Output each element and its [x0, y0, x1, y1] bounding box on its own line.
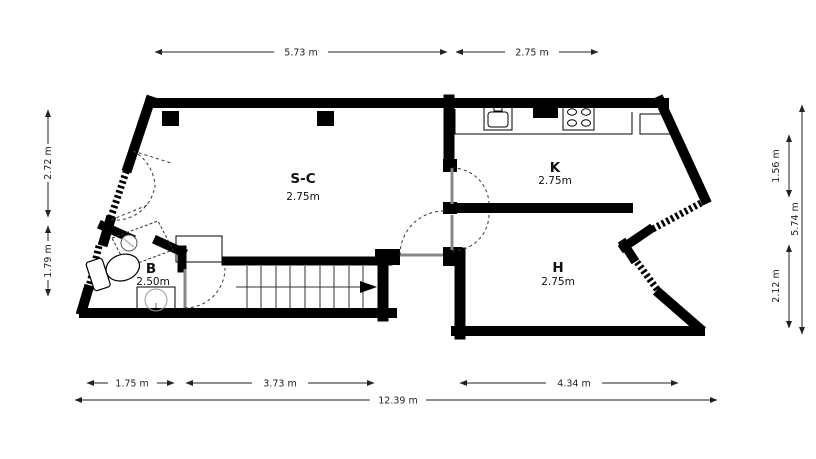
dimension-bottom-total: 12.39 m — [75, 396, 717, 407]
wall-block — [533, 103, 558, 118]
door-kitchen — [452, 168, 489, 205]
dimension-label: 1.79 m — [43, 244, 54, 277]
dimension-label: 5.73 m — [284, 48, 317, 59]
door-corridor — [400, 211, 444, 255]
dimension-label: 2.72 m — [43, 146, 54, 179]
dimension-label: 5.74 m — [790, 202, 801, 235]
dimension-bottom-bath: 1.75 m — [87, 379, 174, 390]
room-name: B — [146, 261, 156, 277]
burner — [582, 120, 591, 126]
dimension-left-upper: 2.72 m — [43, 110, 54, 217]
stairs-direction-arrow — [360, 281, 377, 293]
room-size: 2.75m — [541, 276, 575, 288]
dimension-label: 12.39 m — [378, 396, 417, 407]
room-size: 2.75m — [538, 175, 572, 187]
door-leaf-dashed — [133, 151, 171, 163]
toilet-icon — [85, 247, 143, 291]
dimension-right-lower: 2.12 m — [771, 245, 789, 328]
door-swing-arc — [452, 168, 489, 205]
room-label-b: B 2.50m — [136, 261, 170, 288]
dimension-right-total: 5.74 m — [790, 105, 802, 334]
dimension-bottom-room: 4.34 m — [460, 379, 678, 390]
stove-outline — [563, 105, 594, 130]
door-hall — [452, 214, 489, 251]
dimension-top-left: 5.73 m — [155, 48, 447, 59]
dimension-label: 4.34 m — [557, 379, 590, 390]
sink-basin — [488, 112, 508, 127]
wall-segment — [128, 101, 150, 167]
window-segment — [649, 203, 701, 231]
room-label-sc: S-C 2.75m — [286, 171, 320, 203]
floor-plan-page: 5.73 m 2.75 m 2.72 m 1.79 m 1.56 m 2.12 … — [0, 0, 816, 459]
window-segment — [109, 166, 128, 223]
wall-block — [375, 249, 400, 265]
dimension-top-right: 2.75 m — [456, 48, 598, 59]
dimension-label: 1.75 m — [115, 379, 148, 390]
dimension-label: 1.56 m — [771, 149, 782, 182]
dimension-label: 3.73 m — [263, 379, 296, 390]
column — [317, 111, 334, 126]
door-swing-arc — [185, 268, 225, 308]
stove-icon — [563, 105, 594, 130]
column — [162, 111, 179, 126]
room-name: K — [550, 160, 561, 176]
windows — [88, 166, 701, 296]
door-swing-arc — [452, 214, 489, 251]
floor-plan-canvas: 5.73 m 2.75 m 2.72 m 1.79 m 1.56 m 2.12 … — [0, 0, 816, 459]
structural-columns — [162, 111, 334, 126]
room-label-h: H 2.75m — [541, 260, 575, 288]
room-label-k: K 2.75m — [538, 160, 572, 187]
dimension-label: 2.75 m — [515, 48, 548, 59]
wall-segment — [82, 290, 88, 310]
room-name: H — [552, 260, 563, 276]
dimension-left-lower: 1.79 m — [43, 226, 54, 296]
burner — [568, 120, 577, 126]
wall-segment — [660, 294, 699, 328]
dimension-bottom-stairs: 3.73 m — [186, 379, 374, 390]
burner — [568, 109, 577, 115]
room-name: S-C — [290, 171, 315, 187]
dimension-label: 2.12 m — [771, 269, 782, 302]
room-size: 2.50m — [136, 276, 170, 288]
room-size: 2.75m — [286, 191, 320, 203]
door-bathroom — [185, 268, 225, 308]
kitchen-sink-icon — [484, 106, 512, 130]
burner — [582, 109, 591, 115]
bathroom-fixtures — [85, 221, 175, 313]
door-swing-arc — [111, 190, 154, 220]
dimension-right-upper: 1.56 m — [771, 135, 789, 197]
wall-block — [443, 159, 457, 172]
staircase — [176, 236, 377, 308]
door-swing-arc — [400, 211, 444, 255]
